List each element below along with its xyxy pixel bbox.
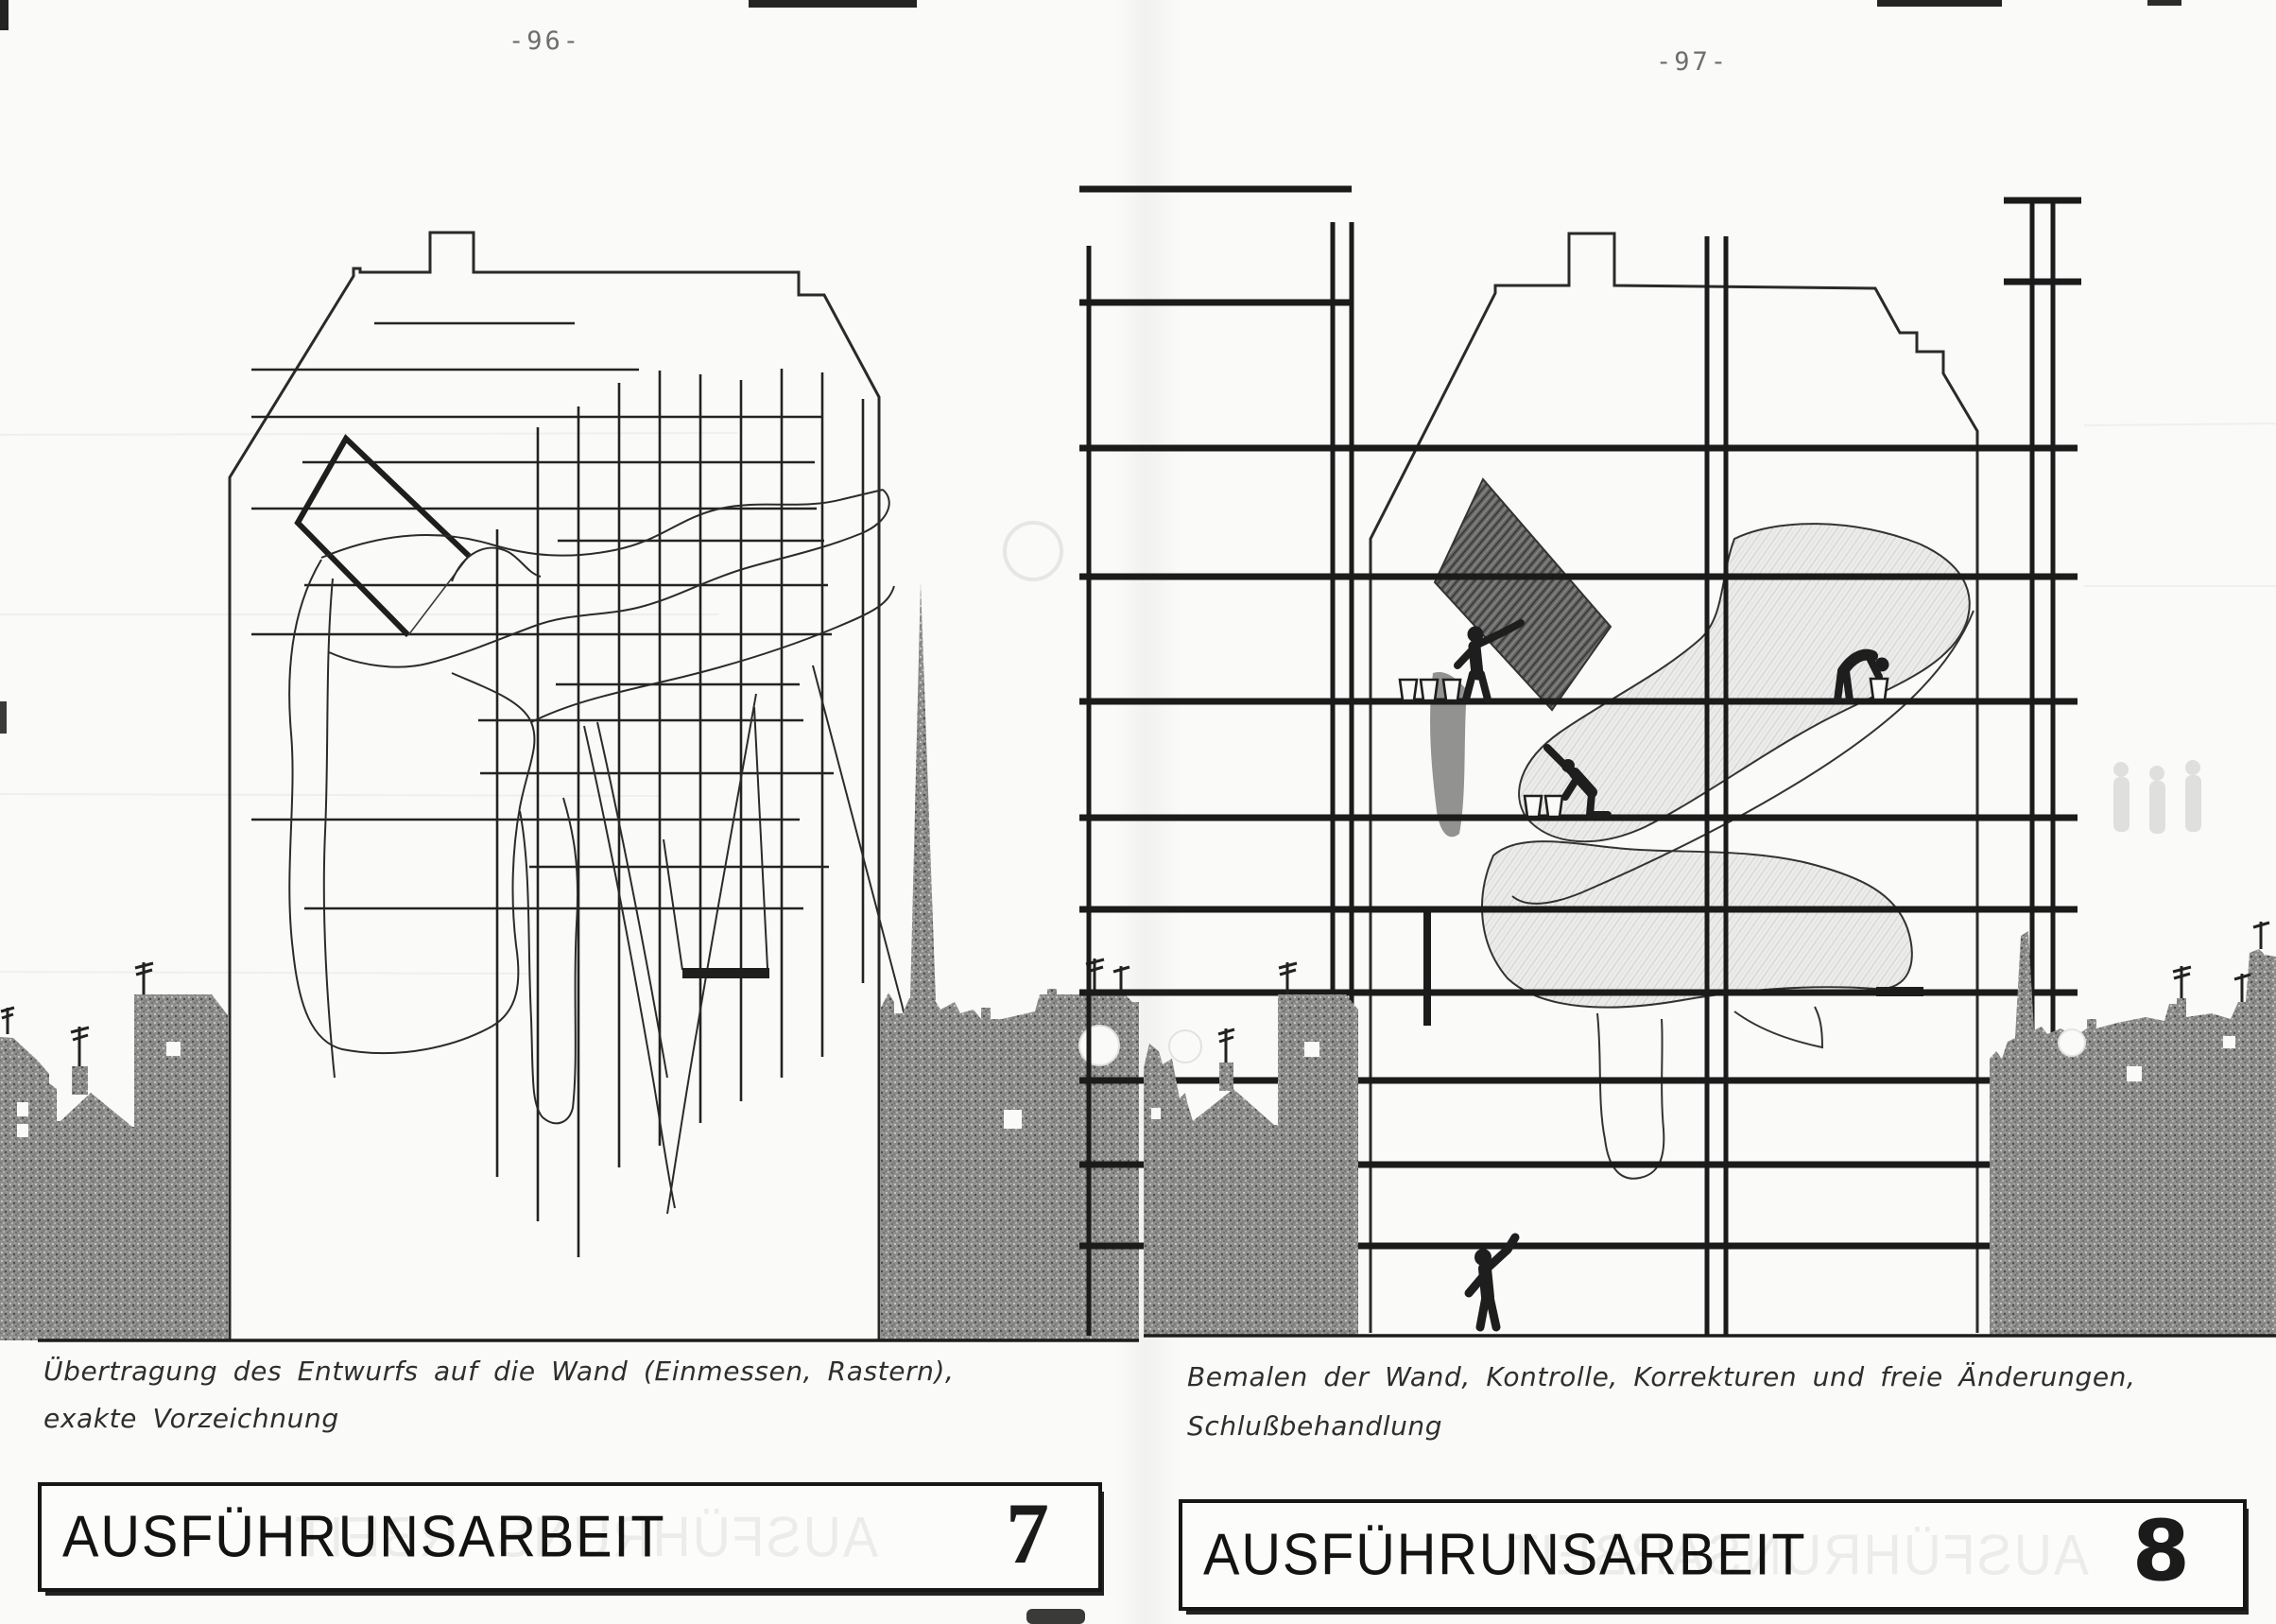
- window-cutout: [1151, 1108, 1161, 1119]
- rooftop-silhouette-left-page-right: [881, 582, 1139, 1340]
- mural-dark-square: [1435, 479, 1611, 710]
- punch-hole: [2059, 1029, 2085, 1056]
- title-label-left: AUSFÜHRUNSARBEIT: [62, 1504, 665, 1571]
- caption-left-line1: Übertragung des Entwurfs auf die Wand (E…: [43, 1356, 955, 1387]
- window-cutout: [1004, 1110, 1022, 1129]
- window-cutout: [1304, 1042, 1319, 1057]
- rooftop-silhouette-right-page-left: [1144, 962, 1358, 1336]
- figure-7-drawing: [230, 233, 924, 1340]
- page-number-right: -97-: [1656, 47, 1729, 77]
- rooftop-silhouette-left-page-left: [0, 962, 228, 1340]
- punch-hole: [1169, 1030, 1201, 1063]
- title-box-right: AUSFÜHRUNSARBEIT AUSFÜHRUNSARBEIT 8: [1179, 1499, 2247, 1611]
- page-number-left: -96-: [509, 26, 581, 56]
- tv-antenna-icon: [1086, 959, 1129, 994]
- ghost-transfer-figures: [2113, 760, 2201, 834]
- title-box-left: AUSFÜHRUNSARBEIT AUSFÜHRUNSARBEIT 7: [38, 1482, 1102, 1592]
- painter-on-ground: [1469, 1237, 1515, 1327]
- window-cutout: [17, 1102, 28, 1116]
- window-cutout: [166, 1042, 181, 1056]
- caption-right-line1: Bemalen der Wand, Kontrolle, Korrekturen…: [1187, 1361, 2136, 1392]
- design-sketch-lines: [289, 490, 924, 1214]
- caption-right-line2: Schlußbehandlung: [1187, 1410, 1442, 1442]
- spire: [910, 582, 936, 1000]
- caption-left-line2: exakte Vorzeichnung: [43, 1403, 339, 1434]
- scanned-book-spread: -96- -97- Übertragung des Entwurfs auf d…: [0, 0, 2276, 1624]
- title-number-left: 7: [1006, 1483, 1049, 1583]
- window-cutout: [2223, 1036, 2235, 1048]
- title-number-right: 8: [2132, 1502, 2190, 1599]
- grid-vertical-lines: [497, 369, 863, 1257]
- title-label-right: AUSFÜHRUNSARBEIT: [1203, 1522, 1806, 1589]
- window-cutout: [2127, 1066, 2142, 1081]
- design-tilted-square: [298, 439, 469, 635]
- grid-horizontal-lines: [251, 323, 834, 908]
- design-base-bar: [682, 968, 769, 978]
- punch-hole: [1079, 1026, 1119, 1065]
- window-cutout: [17, 1124, 28, 1137]
